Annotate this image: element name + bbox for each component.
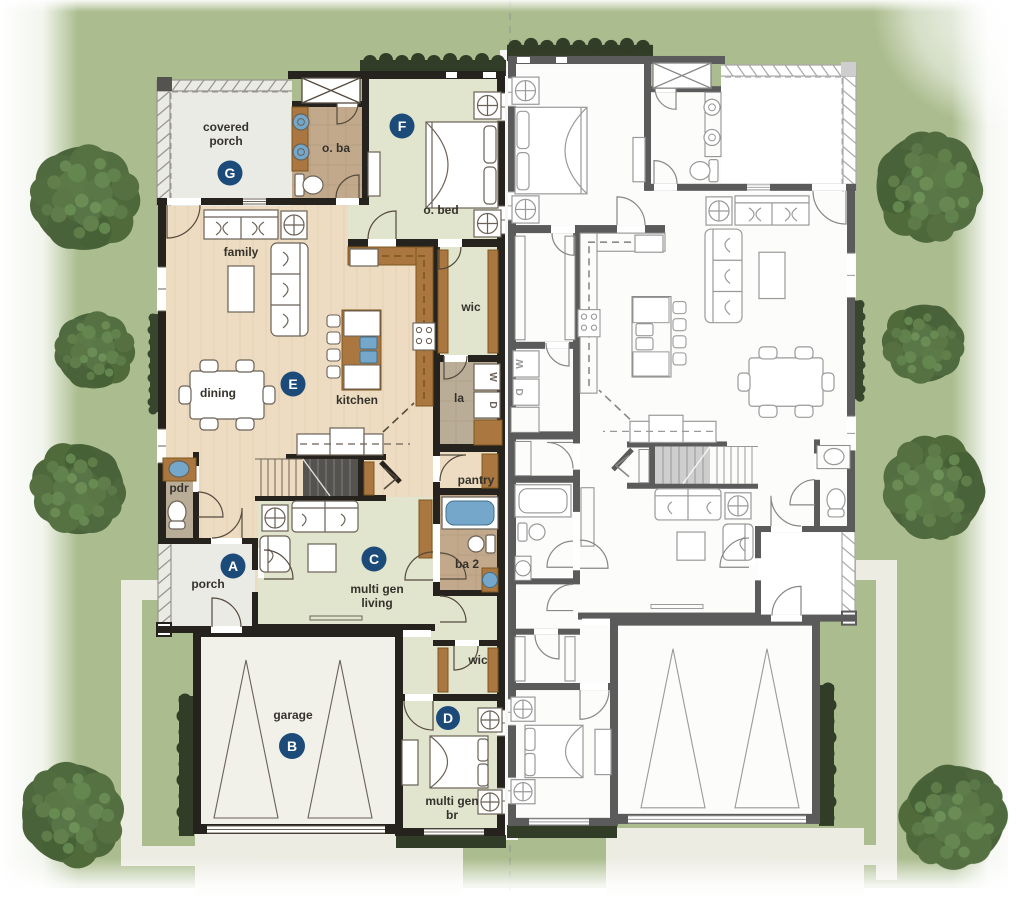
svg-text:multi gen: multi gen	[425, 794, 478, 808]
svg-text:la: la	[454, 391, 464, 405]
svg-text:kitchen: kitchen	[336, 393, 378, 407]
svg-text:B: B	[287, 738, 297, 754]
svg-text:multi gen: multi gen	[350, 582, 403, 596]
svg-text:garage: garage	[273, 708, 313, 722]
svg-text:o. bed: o. bed	[423, 203, 458, 217]
svg-text:pdr: pdr	[169, 481, 189, 495]
svg-text:wic: wic	[460, 300, 481, 314]
svg-text:family: family	[224, 245, 259, 259]
svg-text:wic: wic	[467, 653, 488, 667]
svg-text:C: C	[369, 551, 379, 567]
svg-text:E: E	[288, 376, 297, 392]
svg-text:G: G	[225, 165, 236, 181]
svg-text:dining: dining	[200, 386, 236, 400]
svg-text:A: A	[228, 558, 238, 574]
svg-text:D: D	[443, 710, 453, 726]
svg-text:pantry: pantry	[458, 473, 495, 487]
svg-text:covered: covered	[203, 120, 249, 134]
svg-text:ba 2: ba 2	[455, 557, 479, 571]
svg-text:br: br	[446, 808, 458, 822]
svg-text:porch: porch	[191, 577, 224, 591]
svg-text:living: living	[361, 596, 392, 610]
svg-text:porch: porch	[209, 134, 242, 148]
svg-text:F: F	[398, 118, 407, 134]
svg-text:o. ba: o. ba	[322, 141, 350, 155]
